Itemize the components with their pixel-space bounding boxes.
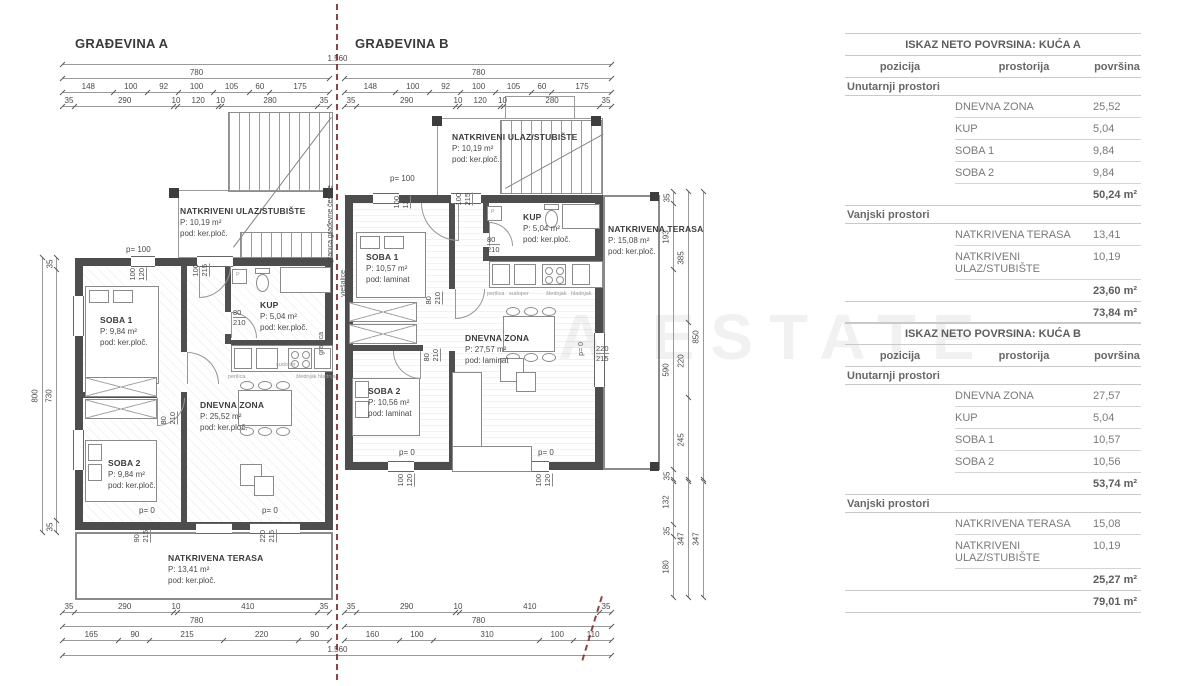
- dim-label: 210: [168, 412, 178, 425]
- dim-segment: 780: [345, 616, 612, 626]
- dim-segment: 290: [75, 602, 174, 612]
- dim-label: 215: [463, 193, 473, 206]
- room-label-soba1-b: SOBA 1 P: 10,57 m² pod: laminat: [366, 252, 410, 285]
- area-value-cell: 25,52: [1093, 96, 1141, 118]
- dim-segment: 280: [222, 96, 318, 106]
- dim-chain-left-inner: 3573035: [44, 258, 57, 533]
- dim-label: 347: [692, 532, 702, 545]
- dim-label: 100: [396, 474, 405, 487]
- building-b-title: GRAĐEVINA B: [355, 36, 449, 51]
- dim-segment: 35: [345, 96, 357, 106]
- dim-label: 215: [141, 530, 151, 543]
- stove-icon: [542, 264, 566, 285]
- dim-label: 100: [392, 196, 401, 209]
- dim-segment: 410: [460, 602, 600, 612]
- room-name-cell: DNEVNA ZONA: [955, 385, 1093, 407]
- dim-label: 120: [405, 474, 415, 487]
- sink-icon: [514, 264, 536, 285]
- section-label: Unutarnji prostori: [845, 367, 1141, 385]
- table-row: KUP5,04: [845, 407, 1141, 429]
- grand-total-value: 73,84 m²: [1093, 302, 1141, 323]
- dim-chain-b-780-top: 780: [345, 66, 612, 79]
- column-header: površina: [1093, 61, 1141, 73]
- section-total-value: 25,27 m²: [1093, 569, 1141, 590]
- dim-label: 35: [320, 96, 329, 106]
- dim-chain-b-walls-bottom: 352901041035: [345, 600, 612, 613]
- dim-label: 35: [320, 602, 329, 612]
- dim-label: 290: [118, 96, 131, 106]
- dim-label: 780: [190, 616, 203, 626]
- room-area: P: 9,84 m²: [108, 469, 156, 480]
- dim-label: 120: [192, 96, 205, 106]
- room-label-kup-b: KUP P: 5,04 m² pod: ker.ploč.: [523, 212, 571, 245]
- dim-label: 80: [487, 235, 500, 244]
- table-row: NATKRIVENA TERASA15,08: [845, 513, 1141, 535]
- dim-label: 210: [433, 292, 443, 305]
- dim-label: 100: [191, 264, 200, 277]
- stairs-a-upper: [228, 112, 333, 192]
- dim-annotation: 80210: [159, 412, 178, 425]
- room-name-cell: SOBA 1: [955, 429, 1093, 451]
- dim-annotation: 100120: [392, 196, 411, 209]
- dim-label: 215: [180, 630, 193, 640]
- chair-icon: [506, 307, 520, 316]
- dim-segment: 110: [574, 630, 612, 640]
- dim-segment: 35: [318, 602, 330, 612]
- room-name: SOBA 1: [366, 252, 410, 263]
- area-value-cell: 10,19: [1093, 535, 1141, 569]
- dim-segment: 100: [114, 82, 148, 92]
- dim-annotation: vješalice: [340, 270, 347, 297]
- room-name: NATKRIVENI ULAZ/STUBIŠTE: [452, 132, 578, 143]
- section-label: Vanjski prostori: [845, 495, 1141, 513]
- dim-segment: 35: [600, 96, 612, 106]
- dim-label: 100: [472, 82, 485, 92]
- table-row: SOBA 19,84: [845, 140, 1141, 162]
- dim-label: 220: [677, 354, 687, 367]
- terrace-b-post-bottom: [650, 462, 659, 471]
- dim-chain-a-780-bottom: 780: [63, 614, 330, 627]
- table-title: ISKAZ NETO POVRSINA: KUĆA A: [845, 33, 1141, 56]
- dim-segment: 105: [214, 82, 250, 92]
- room-label-kup-a: KUP P: 5,04 m² pod: ker.ploč.: [260, 300, 308, 333]
- room-floor: pod: ker.ploč.: [100, 337, 148, 348]
- dim-annotation: 80210: [422, 349, 441, 362]
- room-name-cell: KUP: [955, 407, 1093, 429]
- dim-label: 105: [225, 82, 238, 92]
- dim-segment: 220: [224, 630, 299, 640]
- table-header-row: pozicijaprostorijapovršina: [845, 56, 1141, 78]
- dim-segment: 90: [119, 630, 150, 640]
- dim-label: 35: [602, 96, 611, 106]
- room-name: SOBA 1: [100, 315, 148, 326]
- dim-segment: 410: [178, 602, 318, 612]
- dim-label: 92: [159, 82, 168, 92]
- dim-segment: 280: [504, 96, 600, 106]
- dim-label: 210: [431, 349, 441, 362]
- table-row: NATKRIVENI ULAZ/STUBIŠTE10,19: [845, 535, 1141, 569]
- room-area: P: 25,52 m²: [200, 411, 264, 422]
- dim-segment: 385: [676, 192, 688, 323]
- terrace-door-opening: [196, 523, 232, 534]
- dim-chain-b-segments-bottom: 160100310100110: [345, 628, 612, 641]
- room-name: NATKRIVENI ULAZ/STUBIŠTE: [180, 206, 306, 217]
- table-header-row: pozicijaprostorijapovršina: [845, 345, 1141, 367]
- dim-annotation: 100215: [191, 264, 210, 277]
- room-label-soba2-b: SOBA 2 P: 10,56 m² pod: laminat: [368, 386, 412, 419]
- dim-label: 80: [422, 349, 431, 362]
- dim-label: 100: [551, 630, 564, 640]
- room-name-cell: SOBA 2: [955, 162, 1093, 184]
- dim-segment: 160: [345, 630, 400, 640]
- dim-label: 120: [137, 268, 147, 281]
- dim-annotation: P: [236, 272, 240, 278]
- dim-label: 245: [677, 434, 687, 447]
- room-area: P: 9,84 m²: [100, 326, 148, 337]
- dim-segment: 780: [63, 68, 330, 78]
- dim-label: 280: [545, 96, 558, 106]
- room-area: P: 10,19 m²: [180, 217, 306, 228]
- wardrobe-icon: [349, 302, 417, 322]
- fridge-icon: [572, 264, 590, 285]
- dim-label: 165: [85, 630, 98, 640]
- dim-label: 90: [132, 530, 141, 543]
- sink-icon: [256, 348, 278, 369]
- area-value-cell: 5,04: [1093, 407, 1141, 429]
- dim-segment: 100: [396, 82, 430, 92]
- area-value-cell: 9,84: [1093, 140, 1141, 162]
- dim-chain-a-segments-bottom: 1659021522090: [63, 628, 330, 641]
- room-name: NATKRIVENA TERASA: [608, 224, 704, 235]
- dim-chain-a-walls-top: 35290101201028035: [63, 94, 330, 107]
- area-value-cell: 10,56: [1093, 451, 1141, 473]
- room-floor: pod: laminat: [465, 355, 529, 366]
- dim-label: 92: [441, 82, 450, 92]
- coffee-table-icon: [254, 476, 274, 496]
- chair-icon: [524, 307, 538, 316]
- dim-label: 120: [474, 96, 487, 106]
- washing-machine-icon: [234, 348, 252, 369]
- dim-label: 310: [480, 630, 493, 640]
- room-name: DNEVNA ZONA: [200, 400, 264, 411]
- table-row: DNEVNA ZONA27,57: [845, 385, 1141, 407]
- dim-segment: 220: [676, 323, 688, 398]
- dim-segment: 215: [150, 630, 224, 640]
- area-value-cell: 15,08: [1093, 513, 1141, 535]
- dim-segment: 165: [63, 630, 119, 640]
- area-value-cell: 10,19: [1093, 246, 1141, 280]
- dim-annotation: p= 100: [390, 174, 415, 183]
- dim-segment: 245: [676, 398, 688, 482]
- chair-icon: [542, 307, 556, 316]
- dim-segment: 120: [178, 96, 219, 106]
- room-name: SOBA 2: [368, 386, 412, 397]
- dim-segment: 92: [430, 82, 462, 92]
- dim-chain-a-780-top: 780: [63, 66, 330, 79]
- dim-label: 148: [82, 82, 95, 92]
- dim-annotation: 220215: [258, 530, 277, 543]
- room-floor: pod: laminat: [366, 274, 410, 285]
- dim-label: 100: [454, 193, 463, 206]
- dim-label: 220: [255, 630, 268, 640]
- dim-segment: 148: [63, 82, 114, 92]
- toilet-tank-icon: [255, 268, 270, 274]
- area-table-kuca-a: ISKAZ NETO POVRSINA: KUĆA Apozicijaprost…: [845, 33, 1141, 324]
- dim-segment: 90: [299, 630, 330, 640]
- room-floor: pod: ker.ploč.: [608, 246, 704, 257]
- room-name: KUP: [523, 212, 571, 223]
- room-floor: pod: laminat: [368, 408, 412, 419]
- dim-chain-b-780-bottom: 780: [345, 614, 612, 627]
- canopy-column-b-right: [591, 116, 601, 126]
- dim-annotation: p= 0: [399, 448, 415, 457]
- coffee-table-icon: [516, 372, 536, 392]
- room-label-dnevna-b: DNEVNA ZONA P: 27,57 m² pod: laminat: [465, 333, 529, 366]
- wardrobe-icon: [85, 377, 157, 397]
- dim-segment: 60: [250, 82, 271, 92]
- pillow-icon: [88, 444, 102, 461]
- room-label-ulaz-b: NATKRIVENI ULAZ/STUBIŠTE P: 10,19 m² pod…: [452, 132, 578, 165]
- dim-label: 35: [65, 96, 74, 106]
- dim-annotation: 80210: [424, 292, 443, 305]
- dim-chain-a-segments-top: 1481009210010560175: [63, 80, 330, 93]
- pillow-icon: [355, 381, 369, 398]
- dim-label: 850: [692, 330, 702, 343]
- room-floor: pod: ker.ploč.: [452, 154, 578, 165]
- dim-label: 35: [347, 96, 356, 106]
- column-header: površina: [1093, 350, 1141, 362]
- dim-annotation: p= 0: [538, 448, 554, 457]
- pillow-icon: [88, 464, 102, 481]
- sofa-icon: [452, 446, 532, 472]
- dim-label: 347: [677, 532, 687, 545]
- room-area: P: 15,08 m²: [608, 235, 704, 246]
- room-area: P: 5,04 m²: [260, 311, 308, 322]
- dim-label: 60: [537, 82, 546, 92]
- dim-annotation: granica: [318, 332, 325, 355]
- dim-label: 290: [400, 96, 413, 106]
- chair-icon: [258, 381, 272, 390]
- dim-segment: 100: [179, 82, 213, 92]
- dim-segment: 175: [270, 82, 330, 92]
- dim-label: 35: [65, 602, 74, 612]
- section-total-value: 53,74 m²: [1093, 473, 1141, 494]
- window: [388, 461, 414, 472]
- dim-annotation: sudoper: [509, 291, 529, 297]
- dim-label: 215: [200, 264, 210, 277]
- dim-label: 780: [190, 68, 203, 78]
- parcel-boundary-line: [336, 4, 338, 680]
- room-name: SOBA 2: [108, 458, 156, 469]
- table-row: SOBA 210,56: [845, 451, 1141, 473]
- column-header: pozicija: [845, 61, 955, 73]
- section-total-value: 23,60 m²: [1093, 280, 1141, 301]
- room-area: P: 13,41 m²: [168, 564, 264, 575]
- dim-annotation: 220215: [596, 344, 609, 363]
- table-row: NATKRIVENI ULAZ/STUBIŠTE10,19: [845, 246, 1141, 280]
- dim-segment: 347: [676, 480, 688, 598]
- dim-label: 160: [366, 630, 379, 640]
- dim-segment: 780: [345, 68, 612, 78]
- dim-annotation: 100120: [534, 474, 553, 487]
- dim-chain-b-walls-top: 35290101201028035: [345, 94, 612, 107]
- dim-label: 215: [596, 353, 609, 363]
- room-name-cell: SOBA 2: [955, 451, 1093, 473]
- dim-segment: 800: [30, 258, 42, 533]
- room-name-cell: DNEVNA ZONA: [955, 96, 1093, 118]
- wardrobe-icon: [349, 324, 417, 344]
- pillow-icon: [89, 290, 109, 303]
- dim-annotation: 80210: [233, 308, 246, 327]
- room-floor: pod: ker.ploč.: [168, 575, 264, 586]
- dim-annotation: perilica: [487, 291, 504, 297]
- table-row: SOBA 110,57: [845, 429, 1141, 451]
- dim-segment: 35: [63, 96, 75, 106]
- dim-segment: 290: [357, 96, 456, 106]
- column-header: prostorija: [955, 350, 1093, 362]
- dim-label: 410: [241, 602, 254, 612]
- section-label: Unutarnji prostori: [845, 78, 1141, 96]
- pillow-icon: [384, 236, 404, 249]
- dim-label: 60: [255, 82, 264, 92]
- room-label-ulaz-a: NATKRIVENI ULAZ/STUBIŠTE P: 10,19 m² pod…: [180, 206, 306, 239]
- dim-label: 105: [507, 82, 520, 92]
- dim-chain-right-inner-bottom: 13235180: [661, 480, 674, 598]
- dim-segment: 180: [661, 537, 673, 598]
- dim-label: 800: [31, 389, 41, 402]
- dim-label: 80: [233, 308, 246, 317]
- dim-segment: 590: [661, 270, 673, 471]
- dim-segment: 60: [532, 82, 553, 92]
- room-label-soba2-a: SOBA 2 P: 9,84 m² pod: ker.ploč.: [108, 458, 156, 491]
- table-row: SOBA 29,84: [845, 162, 1141, 184]
- dim-chain-left-outer: 800: [30, 258, 43, 533]
- room-floor: pod: ker.ploč.: [180, 228, 306, 239]
- grand-total-row: 73,84 m²: [845, 302, 1141, 324]
- section-total-row: 53,74 m²: [845, 473, 1141, 495]
- dim-label: 100: [410, 630, 423, 640]
- dim-label: 180: [662, 561, 672, 574]
- dim-label: 210: [487, 244, 500, 254]
- chair-icon: [276, 427, 290, 436]
- dim-segment: 35: [600, 602, 612, 612]
- room-floor: pod: ker.ploč.: [108, 480, 156, 491]
- dim-label: 80: [159, 412, 168, 425]
- dim-label: 780: [472, 68, 485, 78]
- dim-segment: 105: [496, 82, 532, 92]
- dim-label: 590: [662, 363, 672, 376]
- dim-annotation: 80210: [487, 235, 500, 254]
- dim-segment: 730: [44, 270, 56, 521]
- room-name: DNEVNA ZONA: [465, 333, 529, 344]
- table-row: NATKRIVENA TERASA13,41: [845, 224, 1141, 246]
- dim-segment: 175: [552, 82, 612, 92]
- dim-annotation: perilica: [228, 374, 245, 380]
- dim-label: 132: [662, 496, 672, 509]
- dim-label: 410: [523, 602, 536, 612]
- room-name-cell: NATKRIVENI ULAZ/STUBIŠTE: [955, 246, 1093, 280]
- dim-label: 100: [406, 82, 419, 92]
- dim-chain-b-segments-top: 1481009210010560175: [345, 80, 612, 93]
- section-total-value: 50,24 m²: [1093, 184, 1141, 205]
- room-area: P: 27,57 m²: [465, 344, 529, 355]
- dim-annotation: p= 0: [262, 506, 278, 515]
- dim-label: 730: [45, 389, 55, 402]
- dim-annotation: 100120: [128, 268, 147, 281]
- room-area: P: 10,57 m²: [366, 263, 410, 274]
- dim-segment: 780: [63, 616, 330, 626]
- window: [73, 296, 84, 336]
- pillow-icon: [360, 236, 380, 249]
- dim-label: 35: [602, 602, 611, 612]
- dim-label: 290: [118, 602, 131, 612]
- dim-chain-a-walls-bottom: 352901041035: [63, 600, 330, 613]
- dim-label: 120: [401, 196, 411, 209]
- dim-annotation: 100215: [454, 193, 473, 206]
- section-label: Vanjski prostori: [845, 206, 1141, 224]
- dim-segment: 92: [148, 82, 180, 92]
- dim-segment: 100: [461, 82, 495, 92]
- room-label-terasa-a: NATKRIVENA TERASA P: 13,41 m² pod: ker.p…: [168, 553, 264, 586]
- canopy-column-a-left: [169, 188, 179, 198]
- dim-label: 90: [130, 630, 139, 640]
- room-name-cell: KUP: [955, 118, 1093, 140]
- bathtub-icon: [280, 267, 331, 293]
- dim-segment: 100: [540, 630, 574, 640]
- pillow-icon: [355, 401, 369, 418]
- interior-wall: [181, 392, 187, 522]
- dim-label: 80: [424, 292, 433, 305]
- dim-segment: 310: [434, 630, 540, 640]
- dim-label: 175: [575, 82, 588, 92]
- dim-label: 220: [596, 344, 609, 353]
- room-label-soba1-a: SOBA 1 P: 9,84 m² pod: ker.ploč.: [100, 315, 148, 348]
- canopy-column-b-left: [432, 116, 442, 126]
- window: [73, 430, 84, 470]
- dim-annotation: štednjak: [296, 374, 317, 380]
- dim-annotation: sudoper: [276, 362, 296, 368]
- room-name-cell: SOBA 1: [955, 140, 1093, 162]
- dim-label: 290: [400, 602, 413, 612]
- wardrobe-icon: [85, 399, 157, 419]
- chair-icon: [240, 381, 254, 390]
- dim-annotation: hladnjak: [571, 291, 592, 297]
- room-floor: pod: ker.ploč.: [523, 234, 571, 245]
- room-label-terasa-b: NATKRIVENA TERASA P: 15,08 m² pod: ker.p…: [608, 224, 704, 257]
- sofa-icon: [452, 372, 482, 454]
- area-value-cell: 10,57: [1093, 429, 1141, 451]
- floor-plan-sheet: A ESTATE GRAĐEVINA A GRAĐEVINA B: [0, 0, 1200, 686]
- area-table-kuca-b: ISKAZ NETO POVRSINA: KUĆA Bpozicijaprost…: [845, 322, 1141, 613]
- chair-icon: [542, 353, 556, 362]
- dim-label: 100: [190, 82, 203, 92]
- room-name: KUP: [260, 300, 308, 311]
- toilet-tank-icon: [544, 204, 559, 210]
- dim-label: 220: [258, 530, 267, 543]
- section-total-row: 23,60 m²: [845, 280, 1141, 302]
- dim-segment: 290: [357, 602, 456, 612]
- room-label-dnevna-a: DNEVNA ZONA P: 25,52 m² pod: ker.ploč.: [200, 400, 264, 433]
- dim-annotation: p= 100: [126, 245, 151, 254]
- dim-label: 35: [347, 602, 356, 612]
- grand-total-row: 79,01 m²: [845, 591, 1141, 613]
- dim-annotation: p= 0: [578, 342, 585, 356]
- table-row: KUP5,04: [845, 118, 1141, 140]
- dim-annotation: 100120: [396, 474, 415, 487]
- table-title: ISKAZ NETO POVRSINA: KUĆA B: [845, 322, 1141, 345]
- dim-segment: 35: [318, 96, 330, 106]
- dim-chain-right-middle-bottom: 347: [676, 480, 689, 598]
